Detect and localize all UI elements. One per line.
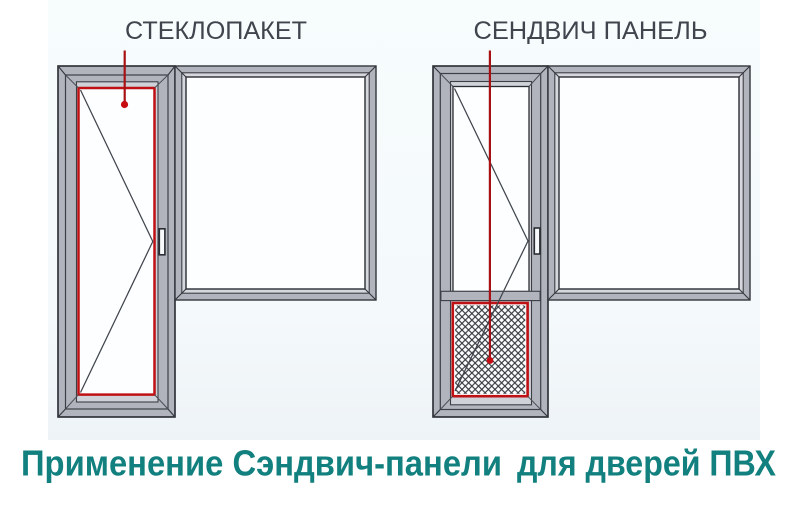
svg-text:для дверей ПВХ: для дверей ПВХ [517, 443, 776, 484]
svg-text:Применение Сэндвич-панели: Применение Сэндвич-панели [21, 443, 502, 484]
svg-text:СЕНДВИЧ ПАНЕЛЬ: СЕНДВИЧ ПАНЕЛЬ [474, 17, 708, 45]
svg-text:СТЕКЛОПАКЕТ: СТЕКЛОПАКЕТ [125, 17, 307, 45]
